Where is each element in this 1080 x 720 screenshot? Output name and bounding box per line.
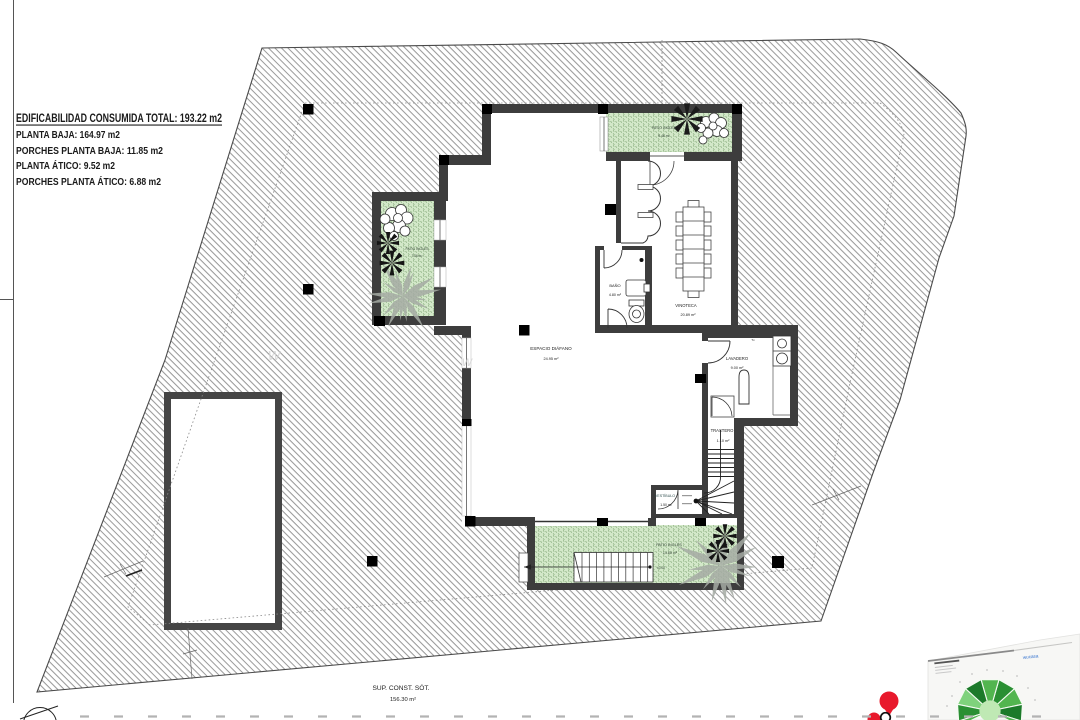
svg-text:w: w bbox=[268, 345, 282, 364]
svg-text:1.50 m²: 1.50 m² bbox=[660, 503, 672, 507]
svg-text:14.68 m²: 14.68 m² bbox=[663, 551, 678, 555]
svg-text:ESPACIO DIÁFANO: ESPACIO DIÁFANO bbox=[530, 345, 572, 351]
svg-text:4.80 m²: 4.80 m² bbox=[609, 293, 622, 297]
svg-text:PATIO INGLÉS: PATIO INGLÉS bbox=[656, 542, 682, 547]
svg-text:PLANTA BAJA: 164.97 m2: PLANTA BAJA: 164.97 m2 bbox=[16, 129, 120, 141]
svg-text:PATIO INGLÉS: PATIO INGLÉS bbox=[405, 246, 429, 251]
svg-text:TRASTERO: TRASTERO bbox=[711, 428, 735, 433]
svg-text:20.89 m²: 20.89 m² bbox=[681, 313, 697, 317]
svg-text:EDIFICABILIDAD CONSUMIDA TOTAL: EDIFICABILIDAD CONSUMIDA TOTAL: 193.22 m… bbox=[16, 113, 222, 125]
svg-text:PORCHES PLANTA BAJA: 11.85 m2: PORCHES PLANTA BAJA: 11.85 m2 bbox=[16, 145, 163, 157]
svg-text:SUP. CONST. SÓT.: SUP. CONST. SÓT. bbox=[372, 683, 429, 692]
svg-text:1.10 m²: 1.10 m² bbox=[717, 439, 731, 443]
svg-text:9.46 m²: 9.46 m² bbox=[658, 134, 670, 138]
svg-text:VESTÍBULO: VESTÍBULO bbox=[655, 494, 675, 498]
svg-text:9.00 m²: 9.00 m² bbox=[731, 366, 745, 370]
svg-text:±0.00: ±0.00 bbox=[657, 566, 665, 570]
svg-text:PATIO INGLÉS: PATIO INGLÉS bbox=[652, 125, 677, 130]
svg-text:BAÑO: BAÑO bbox=[609, 283, 620, 288]
svg-text:156.30 m²: 156.30 m² bbox=[390, 697, 416, 703]
svg-text:PLANTA ÁTICO: 9.52 m2: PLANTA ÁTICO: 9.52 m2 bbox=[16, 159, 115, 172]
svg-text:7.06 m²: 7.06 m² bbox=[412, 254, 423, 258]
svg-text:LAVADERO: LAVADERO bbox=[726, 356, 749, 361]
svg-text:PORCHES PLANTA ÁTICO: 6.88 m2: PORCHES PLANTA ÁTICO: 6.88 m2 bbox=[16, 175, 161, 188]
svg-text:w: w bbox=[462, 353, 473, 369]
svg-text:Tx: Tx bbox=[751, 338, 755, 342]
svg-text:24.95 m²: 24.95 m² bbox=[544, 357, 560, 361]
svg-text:VINOTECA: VINOTECA bbox=[675, 303, 697, 308]
